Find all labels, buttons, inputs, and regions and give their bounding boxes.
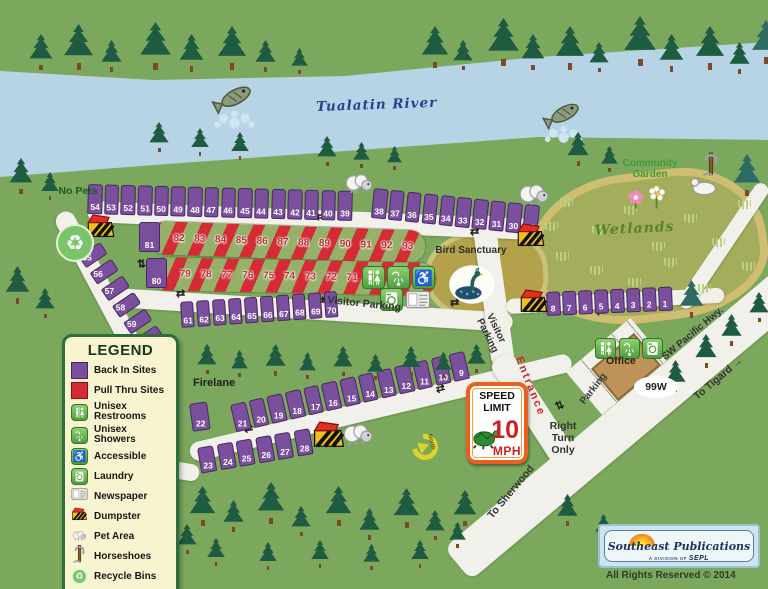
site-marker: 62	[196, 300, 211, 327]
site-marker: 44	[254, 188, 269, 218]
laundry-icon	[71, 468, 88, 485]
rights-text: All Rights Reserved © 2014	[606, 570, 736, 581]
site-marker: 63	[212, 299, 227, 326]
tree-icon	[748, 292, 768, 322]
site-marker: 66	[260, 296, 275, 323]
site-marker: 33	[455, 197, 473, 228]
site-number: 44	[257, 207, 266, 218]
site-marker: 16	[321, 380, 342, 411]
site-number: 59	[128, 320, 137, 331]
pull-thru-numbers: 797877767574737271	[180, 269, 358, 284]
dumpster-icon	[516, 222, 546, 253]
legend-item: Pull Thru Sites	[71, 382, 170, 399]
site-number: 66	[263, 310, 272, 321]
site-marker: 41	[304, 190, 319, 220]
tree-icon	[138, 22, 173, 70]
highway-shield-label: 99W	[645, 381, 667, 393]
grass-tuft-icon	[628, 278, 641, 287]
site-marker: 3	[626, 288, 641, 313]
tree-icon	[658, 34, 685, 72]
site-marker: 45	[237, 188, 252, 218]
shower-icon	[387, 266, 410, 289]
restroom-icon	[71, 404, 88, 421]
grass-tuft-icon	[545, 222, 558, 231]
publisher-logo: Southeast Publications A DIVISION OF SEP…	[598, 524, 760, 568]
legend-item: Horseshoes	[71, 548, 170, 565]
site-number: 88	[298, 237, 310, 248]
site-marker: 5	[594, 289, 609, 314]
site-marker: 67	[276, 294, 291, 321]
site-number: 50	[157, 204, 166, 215]
site-marker: 32	[472, 199, 490, 230]
tree-icon	[358, 508, 381, 540]
tree-icon	[188, 486, 217, 526]
tree-icon	[728, 42, 751, 74]
label-office: Office	[606, 356, 636, 368]
tree-icon	[264, 344, 287, 376]
site-marker: 52	[121, 185, 136, 215]
publisher-logo-frame: Southeast Publications A DIVISION OF SEP…	[604, 530, 754, 562]
site-row: 22	[189, 401, 211, 431]
tree-icon	[256, 482, 286, 524]
site-number: 77	[221, 269, 232, 280]
legend-title: LEGEND	[71, 342, 170, 359]
site-number: 21	[238, 419, 247, 430]
legend-item-label: Unisex Restrooms	[94, 402, 170, 422]
legend-item-label: Dumpster	[94, 512, 141, 522]
site-number: 58	[116, 303, 125, 314]
tree-icon	[290, 48, 309, 74]
site-number: 51	[140, 204, 149, 215]
tree-icon	[556, 494, 579, 526]
speed-sign-unit: MPH	[493, 444, 521, 458]
site-number: 15	[347, 394, 356, 405]
legend-item-label: Pet Area	[94, 532, 134, 542]
tree-icon	[254, 40, 277, 72]
dumpster-icon	[71, 507, 88, 526]
laundry-icon	[71, 468, 88, 485]
restroom-icon	[362, 266, 385, 289]
road-arrow-icon: ⇄	[552, 399, 565, 411]
site-marker: 24	[216, 442, 236, 470]
site-marker: 23	[197, 445, 217, 473]
site-number: 14	[365, 390, 374, 401]
site-number: 22	[196, 419, 205, 430]
legend-item-label: Unisex Showers	[94, 425, 170, 445]
tree-icon	[420, 26, 450, 68]
tree-icon	[298, 352, 317, 379]
tree-icon	[554, 26, 586, 70]
site-number: 2	[647, 300, 652, 311]
tree-icon	[196, 344, 218, 374]
site-marker: 22	[189, 401, 211, 431]
recycle-icon: ♻	[56, 224, 94, 262]
accessible-icon: ♿	[412, 266, 435, 289]
legend-items: Back In SitesPull Thru Sites Unisex Rest…	[71, 362, 170, 585]
site-marker: 37	[388, 190, 406, 221]
grass-tuft-icon	[560, 198, 573, 207]
site-number: 74	[284, 271, 295, 282]
tree-icon	[4, 266, 31, 304]
site-number: 42	[290, 208, 299, 219]
tree-icon	[34, 288, 56, 318]
site-number: 36	[408, 211, 417, 222]
tree-icon	[486, 18, 521, 66]
tree-icon	[678, 280, 705, 318]
tree-icon	[190, 128, 210, 156]
site-number: 86	[256, 236, 268, 247]
tree-icon	[694, 26, 726, 70]
site-marker: 43	[271, 189, 286, 219]
tree-icon	[100, 40, 123, 72]
site-marker: 47	[204, 187, 219, 217]
tree-icon	[622, 16, 658, 66]
site-number: 69	[311, 307, 320, 318]
site-number: 39	[340, 209, 349, 220]
legend-item-label: Back In Sites	[94, 366, 156, 376]
site-number: 87	[277, 236, 289, 247]
site-marker: 51	[137, 185, 152, 215]
site-number: 90	[339, 239, 351, 250]
tree-icon	[694, 334, 718, 368]
site-number: 57	[105, 287, 114, 298]
pullthru-swatch-icon	[71, 382, 88, 399]
label-no-pets: No Pets	[56, 186, 100, 198]
site-marker: 6	[578, 290, 593, 315]
site-number: 79	[180, 269, 191, 280]
site-number: 48	[190, 205, 199, 216]
site-marker: 25	[235, 438, 255, 466]
site-number: 83	[194, 234, 206, 245]
tree-icon	[62, 24, 95, 70]
site-row: 81	[139, 222, 160, 252]
tree-icon	[310, 540, 330, 568]
tree-icon	[434, 352, 453, 378]
campground-map: ⇄⇄⇄⇄⇄⇄⇄⇄⇄⇄⇄ 99W 545352515049484746454443…	[0, 0, 768, 589]
tree-icon	[176, 524, 198, 554]
restroom-icon	[71, 404, 88, 421]
legend-item: Newspaper	[71, 488, 170, 505]
road-arrow-icon: ⇄	[135, 259, 146, 268]
tree-icon	[362, 544, 381, 570]
site-number: 81	[145, 241, 154, 252]
site-number: 7	[567, 303, 572, 314]
publisher-division: A DIVISION OF SEPL	[605, 555, 753, 562]
site-number: 26	[261, 451, 270, 462]
grass-tuft-icon	[712, 238, 725, 247]
grass-tuft-icon	[556, 252, 569, 261]
legend-panel: LEGEND Back In SitesPull Thru Sites Unis…	[62, 334, 179, 589]
horseshoes-icon	[700, 150, 722, 184]
site-marker: 19	[266, 393, 287, 424]
tree-icon	[424, 510, 446, 540]
shower-icon	[71, 427, 88, 444]
site-number: 33	[458, 216, 467, 227]
site-number: 40	[323, 209, 332, 220]
pet-icon	[340, 422, 376, 451]
tree-icon	[352, 142, 371, 168]
tree-icon	[732, 154, 762, 196]
site-number: 49	[173, 205, 182, 216]
legend-item: Back In Sites	[71, 362, 170, 379]
label-bird-sanctuary: Bird Sanctuary	[428, 245, 514, 256]
site-number: 76	[242, 270, 253, 281]
site-marker: 42	[287, 189, 302, 219]
highway-shield: 99W	[634, 376, 678, 398]
site-number: 91	[360, 239, 372, 250]
tree-icon	[148, 122, 170, 152]
site-number: 13	[383, 386, 392, 397]
tree-icon	[400, 346, 422, 377]
site-marker: 26	[255, 435, 275, 463]
site-number: 31	[492, 219, 501, 230]
publisher-name: Southeast Publications	[605, 540, 753, 553]
legend-item: Laundry	[71, 468, 170, 485]
site-number: 43	[273, 207, 282, 218]
site-number: 63	[215, 314, 224, 325]
grass-tuft-icon	[590, 266, 603, 275]
division-text: A DIVISION OF	[649, 556, 687, 561]
speed-limit-sign: SPEED LIMIT 10 MPH	[466, 382, 528, 464]
north-arrow-icon: North	[412, 434, 446, 468]
site-marker: 17	[303, 385, 324, 416]
site-number: 82	[173, 233, 185, 244]
site-number: 62	[199, 315, 208, 326]
speed-sign-value: 10	[491, 418, 519, 443]
site-number: 65	[247, 312, 256, 323]
tree-icon	[28, 34, 54, 70]
legend-item-label: Newspaper	[94, 492, 147, 502]
legend-item-label: Horseshoes	[94, 552, 151, 562]
pet-icon	[342, 172, 376, 199]
accessible-icon: ♿	[71, 448, 88, 465]
tree-icon	[316, 136, 338, 166]
site-number: 46	[223, 206, 232, 217]
backin-swatch-icon	[71, 362, 88, 379]
tree-icon	[178, 34, 205, 72]
site-marker: 50	[154, 186, 169, 216]
site-number: 20	[256, 415, 265, 426]
site-number: 28	[300, 444, 309, 455]
tree-icon	[386, 146, 403, 170]
site-marker: 20	[248, 397, 269, 428]
site-marker: 4	[610, 289, 625, 314]
site-number: 68	[295, 308, 304, 319]
flowers-icon	[626, 182, 674, 216]
site-marker: 40	[321, 190, 336, 220]
site-number: 8	[551, 304, 556, 315]
site-marker: 35	[421, 193, 439, 224]
site-number: 18	[292, 407, 301, 418]
site-number: 1	[663, 299, 668, 310]
grass-tuft-icon	[742, 262, 755, 271]
grass-tuft-icon	[652, 242, 665, 251]
site-number: 9	[459, 369, 464, 380]
site-number: 56	[94, 270, 103, 281]
site-number: 6	[583, 303, 588, 314]
label-right-turn-only: Right Turn Only	[539, 421, 587, 456]
tree-icon	[8, 158, 34, 194]
site-number: 54	[90, 203, 99, 214]
tree-icon	[230, 350, 249, 377]
site-number: 67	[279, 309, 288, 320]
tree-icon	[332, 346, 354, 376]
recycle-icon: ♻	[71, 568, 88, 585]
site-number: 78	[200, 269, 211, 280]
tree-icon	[466, 344, 487, 373]
site-marker: 81	[139, 222, 160, 252]
horseshoes-icon	[71, 543, 88, 570]
site-number: 47	[207, 206, 216, 217]
site-marker: 2	[642, 287, 657, 312]
site-marker: 27	[274, 432, 294, 460]
site-number: 37	[391, 209, 400, 220]
site-number: 16	[329, 398, 338, 409]
site-row: 80	[146, 258, 167, 288]
road-arrow-icon: ⇄	[176, 289, 185, 300]
pull-thru-numbers: 828384858687888990919293	[173, 233, 413, 252]
tree-icon	[258, 542, 278, 570]
site-marker: 69	[308, 292, 323, 319]
site-marker: 21	[230, 402, 251, 433]
grass-tuft-icon	[684, 214, 697, 223]
speed-sign-line2: LIMIT	[483, 402, 510, 414]
site-number: 24	[223, 457, 232, 468]
site-marker: 64	[228, 298, 243, 325]
speed-sign-line1: SPEED	[479, 390, 515, 402]
site-number: 71	[346, 272, 357, 283]
tree-icon	[324, 486, 353, 526]
fish-icon	[205, 78, 267, 136]
legend-item: Unisex Showers	[71, 425, 170, 445]
site-number: 25	[242, 454, 251, 465]
legend-item-label: Recycle Bins	[94, 572, 156, 582]
site-marker: 46	[221, 187, 236, 217]
site-number: 75	[263, 270, 274, 281]
tree-icon	[566, 132, 590, 166]
site-number: 73	[305, 271, 316, 282]
tree-icon	[410, 540, 430, 568]
site-number: 3	[631, 301, 636, 312]
tree-icon	[720, 314, 743, 346]
site-number: 34	[441, 214, 450, 225]
tree-icon	[222, 500, 245, 532]
site-marker: 36	[404, 192, 422, 223]
site-marker: 34	[438, 195, 456, 226]
bird-icon	[448, 264, 496, 310]
accessible-icon: ♿	[71, 448, 88, 465]
site-number: 72	[326, 272, 337, 283]
recycle-icon: ♻	[71, 568, 88, 585]
legend-item: ♿Accessible	[71, 448, 170, 465]
tree-icon	[216, 26, 248, 70]
site-marker: 68	[292, 293, 307, 320]
tree-icon	[230, 132, 250, 160]
grass-tuft-icon	[738, 200, 751, 209]
tree-icon	[366, 354, 385, 380]
site-number: 80	[152, 277, 161, 288]
legend-item: Unisex Restrooms	[71, 402, 170, 422]
dumpster-icon	[519, 288, 549, 319]
dumpster-icon	[71, 508, 88, 525]
site-marker: 15	[339, 376, 360, 407]
site-marker: 61	[180, 301, 195, 328]
shower-icon	[71, 427, 88, 444]
site-number: 45	[240, 207, 249, 218]
site-number: 12	[402, 381, 411, 392]
grass-tuft-icon	[664, 258, 677, 267]
legend-item-label: Accessible	[94, 452, 146, 462]
site-marker: 31	[488, 200, 506, 231]
laundry-icon	[642, 338, 663, 359]
tree-icon	[520, 34, 546, 70]
site-number: 84	[215, 234, 227, 245]
site-number: 35	[424, 212, 433, 223]
site-number: 61	[183, 316, 192, 327]
tree-icon	[448, 522, 467, 548]
tree-icon	[588, 42, 610, 72]
site-number: 89	[319, 238, 331, 249]
site-number: 38	[374, 207, 383, 218]
site-marker: 7	[562, 291, 577, 316]
site-marker: 65	[244, 297, 259, 324]
site-marker: 80	[146, 258, 167, 288]
site-number: 23	[204, 461, 213, 472]
legend-item: ♻Recycle Bins	[71, 568, 170, 585]
site-number: 27	[280, 447, 289, 458]
newspaper-icon	[405, 289, 431, 315]
site-marker: 1	[658, 287, 673, 312]
site-number: 11	[420, 377, 429, 388]
horseshoes-icon	[71, 548, 88, 565]
site-number: 41	[307, 208, 316, 219]
site-number: 17	[311, 402, 320, 413]
site-marker: 18	[285, 389, 306, 420]
legend-item-label: Pull Thru Sites	[94, 386, 164, 396]
newspaper-icon	[71, 487, 88, 506]
tree-icon	[750, 20, 768, 64]
tree-icon	[392, 488, 421, 528]
tree-icon	[206, 538, 226, 566]
site-number: 4	[615, 301, 620, 312]
site-number: 52	[123, 204, 132, 215]
tree-icon	[290, 506, 312, 536]
site-number: 92	[381, 240, 393, 251]
pet-icon	[516, 182, 552, 211]
label-community-garden: Community Garden	[606, 158, 694, 180]
site-number: 85	[236, 235, 248, 246]
legend-item-label: Laundry	[94, 472, 133, 482]
site-marker: 49	[171, 186, 186, 216]
site-marker: 48	[187, 187, 202, 217]
site-number: 19	[274, 411, 283, 422]
site-marker: 53	[104, 184, 119, 214]
tree-icon	[452, 490, 478, 526]
legend-item: Dumpster	[71, 508, 170, 525]
site-number: 64	[231, 313, 240, 324]
site-number: 93	[402, 241, 414, 252]
label-firelane: Firelane	[193, 377, 235, 389]
newspaper-icon	[71, 488, 88, 505]
tree-icon	[452, 40, 474, 70]
site-number: 32	[475, 218, 484, 229]
site-number: 5	[599, 302, 604, 313]
division-brand: SEPL	[689, 555, 709, 562]
